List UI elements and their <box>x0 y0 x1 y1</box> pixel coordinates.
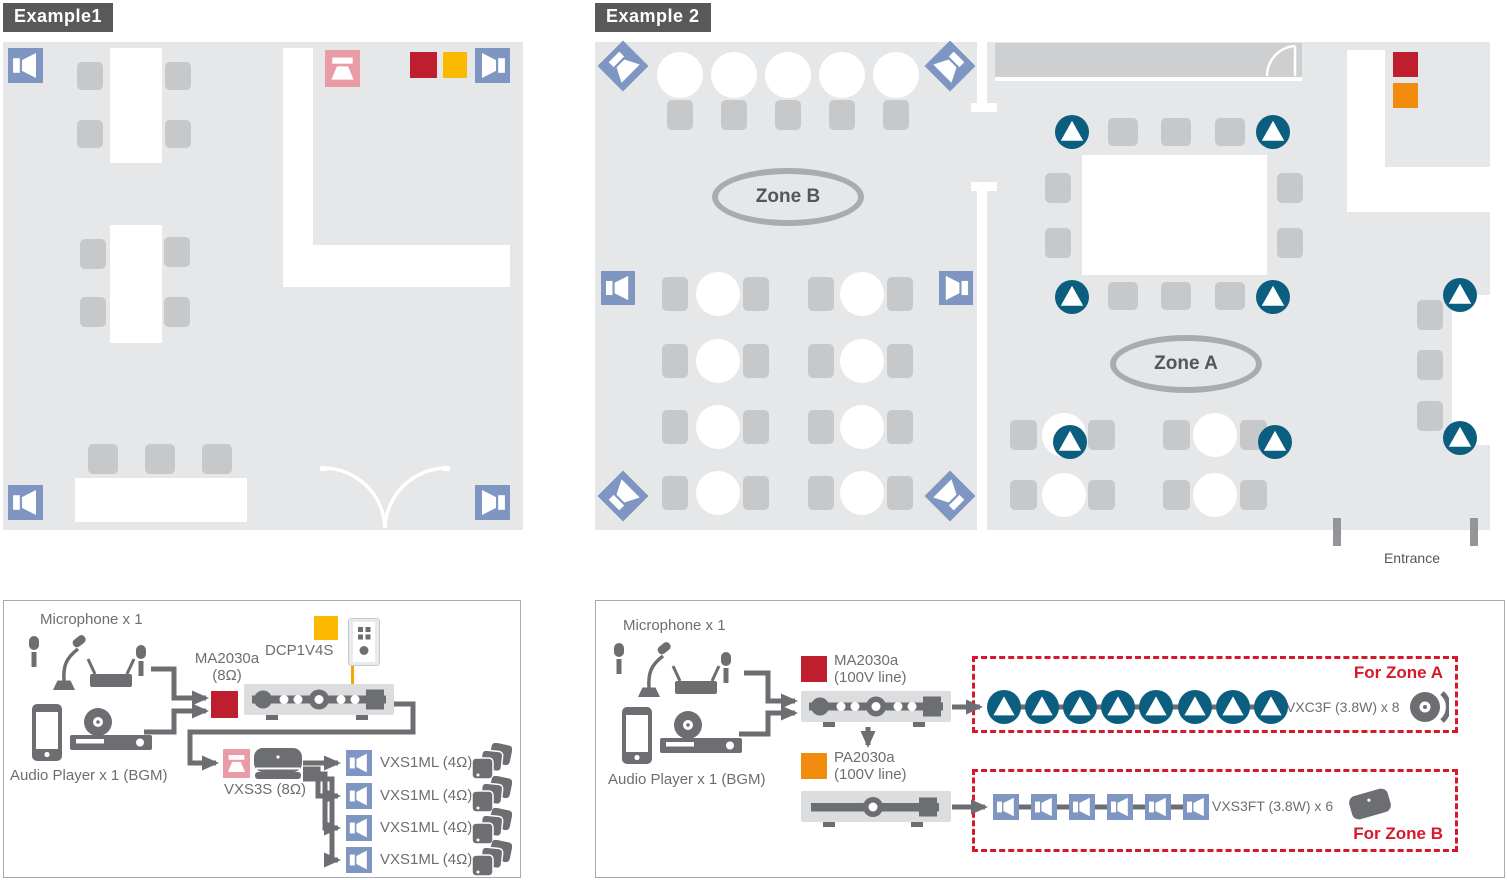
entrance-label: Entrance <box>1362 550 1462 566</box>
wall-speaker-icon <box>346 847 372 873</box>
table-round <box>765 52 811 98</box>
chair <box>887 410 913 444</box>
chair <box>667 100 693 130</box>
chair <box>1108 282 1138 310</box>
chair <box>80 239 106 269</box>
chair <box>1417 401 1443 431</box>
mixer-amplifier-icon <box>801 691 951 731</box>
corner-speaker-icon <box>598 41 649 92</box>
example1-label: Example1 <box>3 3 113 32</box>
chair <box>1277 173 1303 203</box>
chair <box>1088 420 1115 450</box>
partition-wall-cap <box>971 182 997 191</box>
device-square-pa2030a <box>801 753 827 779</box>
wall-speaker-icon <box>601 271 635 305</box>
chair <box>88 444 118 474</box>
chair <box>165 120 191 148</box>
table <box>110 48 162 163</box>
zone-a-badge: Zone A <box>1110 335 1262 393</box>
chair <box>1215 282 1245 310</box>
chair <box>1088 480 1115 510</box>
zone-a-text: Zone A <box>1154 353 1218 375</box>
chair <box>1045 228 1071 258</box>
chair <box>887 277 913 311</box>
chair <box>202 444 232 474</box>
chair <box>1010 420 1037 450</box>
ceiling-speaker-product-icon <box>1409 689 1449 725</box>
wall-speaker-icon <box>8 485 43 520</box>
ceiling-speaker-icon <box>1256 280 1290 314</box>
table-round <box>873 52 919 98</box>
ceiling-speaker-icon <box>1258 425 1292 459</box>
counter <box>313 245 510 287</box>
chair <box>1417 300 1443 330</box>
ceiling-speaker-icon <box>1256 115 1290 149</box>
device-square-ma2030a <box>211 691 238 718</box>
table-round <box>711 52 757 98</box>
table-round <box>696 339 740 383</box>
device-square-dcp1v4s <box>443 52 467 78</box>
chair <box>1163 480 1190 510</box>
table-round <box>696 272 740 316</box>
device-square-pa2030a <box>1393 83 1418 108</box>
example2-system-diagram: Microphone x 1 Audio Player x 1 (BGM) MA… <box>595 600 1505 878</box>
ceiling-speaker-icon <box>1055 280 1089 314</box>
wall-speaker-icon <box>475 485 510 520</box>
table-round <box>696 471 740 515</box>
counter <box>283 48 313 287</box>
zone-b-text: Zone B <box>756 186 820 208</box>
chair <box>80 297 106 327</box>
speaker-row-label: VXS1ML (4Ω) <box>380 851 480 869</box>
power-amplifier-icon <box>801 791 951 831</box>
wall-speaker-icon <box>475 48 510 83</box>
zone-b-badge: Zone B <box>712 168 864 226</box>
chair <box>808 410 834 444</box>
chair <box>887 344 913 378</box>
ceiling-speaker-icon <box>1443 421 1477 455</box>
wall-controller-icon <box>348 618 380 666</box>
chair <box>1161 118 1191 146</box>
chair <box>829 100 855 130</box>
table-round <box>819 52 865 98</box>
table-round <box>840 405 884 449</box>
corner-speaker-icon <box>925 471 976 522</box>
partition-wall <box>977 191 987 530</box>
entrance-post <box>1470 518 1478 546</box>
speaker-stack-icon <box>470 840 512 880</box>
chair <box>808 277 834 311</box>
speaker-row-label: VXS1ML (4Ω) <box>380 787 480 805</box>
chair <box>662 476 688 510</box>
chair <box>775 100 801 130</box>
table-round <box>840 339 884 383</box>
table-round <box>840 471 884 515</box>
door-icon <box>1265 44 1297 78</box>
table-round <box>840 272 884 316</box>
chair <box>743 277 769 311</box>
microphone-set-icon <box>611 641 741 703</box>
chair <box>1010 480 1037 510</box>
device-square-dcp1v4s <box>314 616 338 640</box>
surface-speaker-product-icon <box>1347 785 1393 823</box>
chair <box>1045 173 1071 203</box>
table-round <box>1193 473 1237 517</box>
wall-speaker-icon <box>346 815 372 841</box>
chair <box>77 62 103 90</box>
chair <box>662 344 688 378</box>
chair <box>743 476 769 510</box>
table-round <box>696 405 740 449</box>
chair <box>1161 282 1191 310</box>
ceiling-speaker-icon <box>1053 425 1087 459</box>
subwoofer-product-icon <box>253 748 303 780</box>
wall-speaker-icon <box>939 271 973 305</box>
chair <box>808 344 834 378</box>
table <box>75 478 247 522</box>
chair <box>743 344 769 378</box>
ceiling-speaker-icon <box>1055 115 1089 149</box>
example1-floorplan <box>3 42 523 530</box>
table-round <box>1193 413 1237 457</box>
microphone-set-icon <box>26 634 156 696</box>
wall-section <box>1385 167 1490 212</box>
partition-wall <box>977 42 987 103</box>
chair <box>1417 350 1443 380</box>
example1-system-diagram: Microphone x 1 Audio Player x 1 (BGM) MA… <box>3 600 521 878</box>
chair <box>145 444 175 474</box>
example2-label: Example 2 <box>595 3 711 32</box>
partition-wall-cap <box>971 103 997 112</box>
speaker-row-label: VXS1ML (4Ω) <box>380 819 480 837</box>
chair <box>1108 118 1138 146</box>
chair <box>887 476 913 510</box>
chair <box>721 100 747 130</box>
audio-player-set-icon <box>32 704 157 764</box>
table <box>1082 155 1267 275</box>
door-icon <box>320 466 450 530</box>
corner-speaker-icon <box>925 41 976 92</box>
screen <box>995 43 1302 81</box>
audio-player-set-icon <box>622 707 747 767</box>
subwoofer-icon <box>223 749 250 778</box>
example2-floorplan-zone-b <box>595 42 981 530</box>
chair <box>1277 228 1303 258</box>
chair <box>77 120 103 148</box>
table-round <box>657 52 703 98</box>
corner-speaker-icon <box>598 471 649 522</box>
speaker-row-label: VXS1ML (4Ω) <box>380 754 480 772</box>
wall-speaker-icon <box>346 783 372 809</box>
table <box>110 225 162 343</box>
ceiling-speaker-icon <box>1443 278 1477 312</box>
chair <box>743 410 769 444</box>
wall-section <box>1347 50 1385 212</box>
device-square-ma2030a <box>801 656 827 682</box>
chair <box>883 100 909 130</box>
wall-speaker-icon <box>346 750 372 776</box>
mixer-amplifier-icon <box>244 684 394 724</box>
chair <box>662 277 688 311</box>
device-square-ma2030a <box>410 52 437 78</box>
wall-speaker-icon <box>8 48 43 83</box>
chair <box>1163 420 1190 450</box>
chair <box>808 476 834 510</box>
chair <box>165 62 191 90</box>
subwoofer-icon <box>325 50 360 87</box>
example2-floorplan-zone-a <box>988 42 1490 530</box>
chair <box>1240 480 1267 510</box>
chair <box>164 297 190 327</box>
chair <box>1215 118 1245 146</box>
chair <box>662 410 688 444</box>
chair <box>164 237 190 267</box>
device-square-ma2030a <box>1393 52 1418 77</box>
table-round <box>1042 473 1086 517</box>
entrance-post <box>1333 518 1341 546</box>
